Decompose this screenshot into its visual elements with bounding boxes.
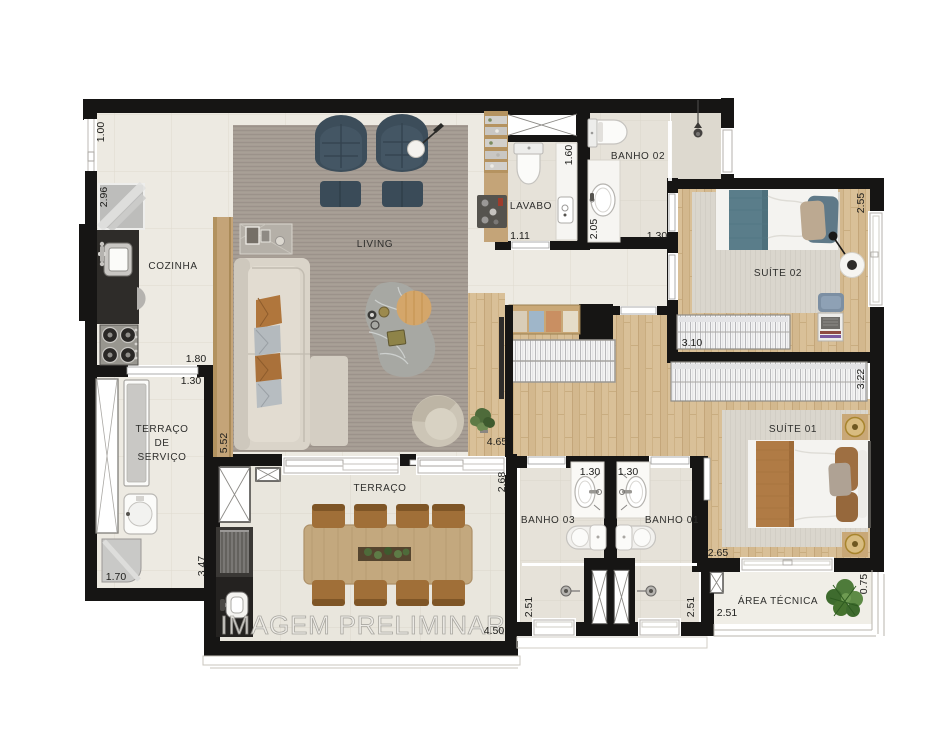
- svg-text:1.30: 1.30: [618, 466, 639, 478]
- svg-text:0.75: 0.75: [858, 574, 870, 595]
- svg-text:SUÍTE 02: SUÍTE 02: [754, 266, 802, 279]
- svg-text:3.47: 3.47: [196, 556, 208, 577]
- svg-text:1.80: 1.80: [186, 353, 207, 365]
- svg-text:2.96: 2.96: [98, 187, 110, 208]
- svg-text:SERVIÇO: SERVIÇO: [137, 452, 186, 463]
- svg-text:1.00: 1.00: [95, 122, 107, 143]
- svg-text:4.50: 4.50: [484, 625, 505, 637]
- svg-text:3.22: 3.22: [855, 369, 867, 390]
- svg-text:2.51: 2.51: [717, 607, 738, 619]
- svg-text:COZINHA: COZINHA: [148, 261, 197, 272]
- svg-text:2.51: 2.51: [685, 597, 697, 618]
- svg-text:1.60: 1.60: [563, 145, 575, 166]
- svg-text:1.11: 1.11: [510, 230, 530, 242]
- svg-text:BANHO 01: BANHO 01: [645, 515, 699, 526]
- svg-text:LIVING: LIVING: [357, 239, 393, 250]
- svg-text:2.51: 2.51: [523, 597, 535, 618]
- svg-text:5.52: 5.52: [218, 433, 230, 454]
- svg-text:1.30: 1.30: [181, 375, 202, 387]
- svg-text:2.65: 2.65: [708, 547, 729, 559]
- svg-text:LAVABO: LAVABO: [510, 201, 552, 212]
- svg-text:1.30: 1.30: [647, 230, 668, 242]
- svg-text:3.10: 3.10: [682, 337, 703, 349]
- svg-text:2.68: 2.68: [496, 472, 508, 493]
- svg-text:SUÍTE 01: SUÍTE 01: [769, 422, 817, 435]
- svg-text:1.70: 1.70: [106, 571, 127, 583]
- svg-text:2.55: 2.55: [855, 193, 867, 214]
- svg-text:TERRAÇO: TERRAÇO: [135, 424, 188, 435]
- svg-text:DE: DE: [154, 438, 169, 449]
- svg-text:ÁREA TÉCNICA: ÁREA TÉCNICA: [738, 594, 818, 607]
- svg-text:1.30: 1.30: [580, 466, 601, 478]
- svg-text:BANHO 02: BANHO 02: [611, 151, 665, 162]
- svg-text:2.05: 2.05: [588, 219, 600, 240]
- svg-text:4.65: 4.65: [487, 436, 508, 448]
- svg-text:TERRAÇO: TERRAÇO: [353, 483, 406, 494]
- svg-text:IMAGEM PRELIMINAR: IMAGEM PRELIMINAR: [220, 610, 505, 640]
- svg-text:BANHO 03: BANHO 03: [521, 515, 575, 526]
